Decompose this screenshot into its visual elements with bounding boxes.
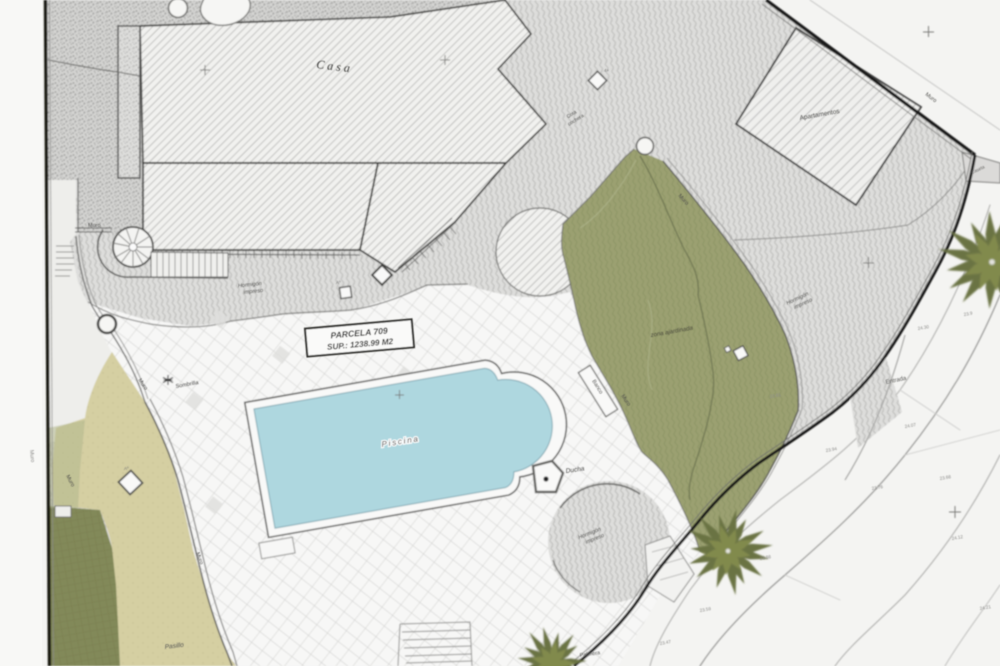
svg-text:Muro: Muro xyxy=(28,450,35,463)
